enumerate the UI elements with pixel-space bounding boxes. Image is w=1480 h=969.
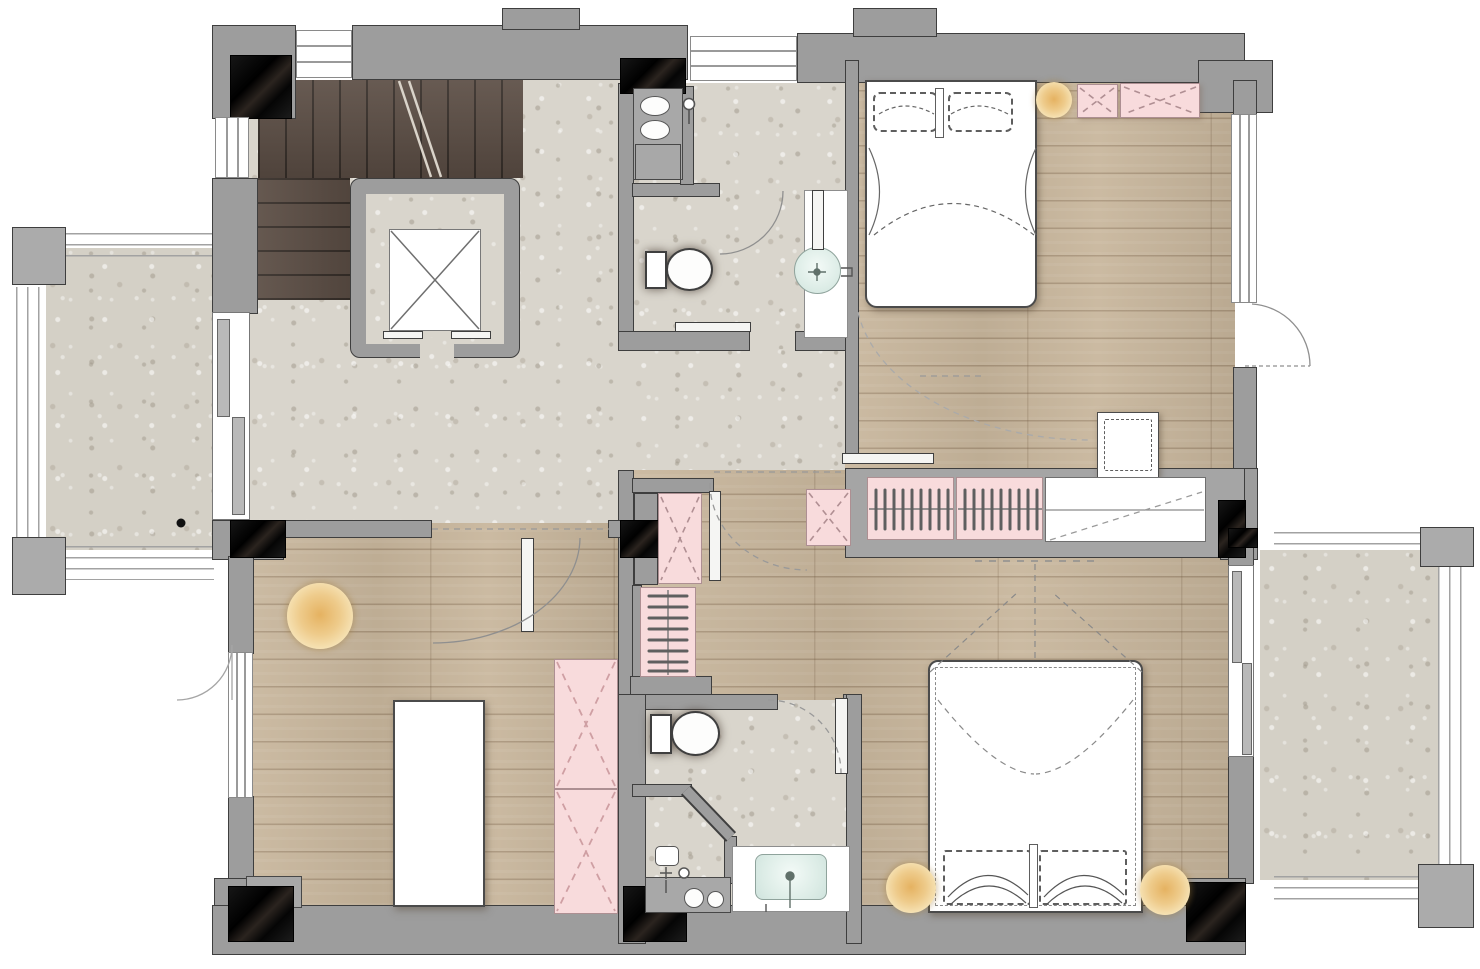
wall-bath-partition: [632, 183, 720, 197]
wall-bl-left-lower: [228, 796, 254, 888]
sliding-door-bath-top: [675, 322, 751, 332]
sliding-door-left-balcony: [212, 312, 250, 520]
wall-nook-top: [632, 478, 714, 493]
wall-right-below-door: [1233, 367, 1257, 472]
column-top-left: [230, 55, 292, 119]
bed-2-pillow-right: [1039, 850, 1127, 905]
railing-right-top: [1274, 532, 1420, 552]
wardrobeBL-upper: [554, 659, 618, 789]
pillar-balcony-left-bottom: [12, 537, 66, 595]
window-bedroomBL-left: [228, 652, 253, 798]
wall-top-notch-a: [502, 8, 580, 30]
pink-cabinet-small-top: [1077, 84, 1118, 118]
stairs-upper-flight: [258, 80, 523, 178]
window-top-left: [296, 30, 352, 78]
stairs-lower-flight: [258, 178, 350, 300]
wardrobe-hanging-a: [867, 477, 954, 540]
bed-1-pillow-left: [873, 92, 938, 132]
column-mid-left: [230, 520, 286, 558]
laundry-basin-2: [640, 120, 670, 140]
utility-ring-2: [707, 891, 724, 908]
railing-left-top: [64, 233, 214, 265]
toilet-bottom-tank: [650, 714, 672, 754]
wall-right-lower: [1228, 756, 1254, 884]
floor-lamp-bedroom2: [287, 583, 353, 649]
bedside-lamp-2-right: [1140, 865, 1190, 915]
dresser-inner: [1104, 419, 1152, 471]
door-leaf-bath-bottom: [835, 698, 848, 774]
sliding-door-right-balcony: [1228, 565, 1254, 757]
wall-top-b: [797, 33, 1245, 83]
laundry-cabinet: [635, 144, 681, 180]
laundry-basin-1: [640, 96, 670, 116]
bed-2-pillow-left: [943, 850, 1031, 905]
corridor-pink-cabinet: [658, 493, 702, 584]
wall-left-panel: [212, 178, 258, 314]
column-mid-center: [620, 520, 662, 558]
pink-storage-box: [806, 489, 851, 546]
railing-right-side: [1438, 565, 1466, 865]
pink-cabinet-wide-top: [1120, 83, 1200, 118]
floor-plan-canvas: [0, 0, 1480, 969]
bed-1-headboard-center: [935, 88, 944, 138]
wall-top-notch-b: [853, 8, 937, 37]
arc-bedroom1-exterior-door: [1252, 304, 1310, 366]
pillar-balcony-right-bottom: [1418, 864, 1474, 928]
toilet-bottom-bowl: [671, 711, 720, 756]
hall-floor-extension: [632, 347, 845, 470]
bedside-lamp-2-left: [886, 863, 936, 913]
toilet-top-bowl: [666, 248, 713, 291]
door-leaf-bath-partition: [812, 190, 824, 250]
elevator-cab: [389, 229, 481, 331]
bedside-lamp-1: [1036, 82, 1072, 118]
pillar-balcony-right-top: [1420, 527, 1474, 567]
wall-bath-top-left: [618, 83, 634, 349]
sliding-leaf-bedroom2: [521, 538, 534, 632]
wardrobe-hanging-b: [956, 477, 1043, 540]
long-table: [393, 700, 485, 907]
column-bottom-left: [228, 886, 294, 942]
utility-ring-1: [684, 888, 704, 908]
wall-closet-bottom: [630, 676, 712, 696]
bed-2-center-tab: [1029, 844, 1038, 908]
column-bottom-right: [1186, 882, 1246, 942]
balcony-left-floor: [46, 248, 212, 550]
window-left-upper: [215, 117, 249, 178]
pillar-balcony-left-top: [12, 227, 66, 285]
sliding-leaf-corridor: [709, 491, 721, 581]
washbasin-round: [794, 247, 841, 294]
basin-rect: [755, 854, 827, 900]
wall-right-upper-stub: [1233, 80, 1257, 116]
railing-left-side: [16, 287, 40, 537]
corridor-hanging-closet: [640, 587, 696, 677]
elevator-door-gap: [420, 338, 454, 360]
toilet-bottom: [645, 706, 727, 762]
toilet-top: [640, 244, 720, 296]
elevator-sill-right: [451, 331, 491, 339]
wall-bl-left-upper: [228, 556, 254, 654]
column-balcony-right-sliver: [1228, 528, 1258, 548]
window-top-middle: [690, 36, 797, 81]
wall-bath-top-bottom-a: [618, 331, 750, 351]
toilet-top-tank: [645, 251, 667, 289]
window-bedroomTR-right: [1231, 114, 1257, 303]
wall-shower-h: [632, 784, 692, 797]
railing-left-bottom: [64, 546, 214, 580]
bed-1-pillow-right: [948, 92, 1013, 132]
wardrobe-linen-cabinet: [1045, 477, 1206, 542]
sliding-door-bedroom1: [842, 453, 934, 464]
shower-mixer-plate: [655, 846, 679, 866]
wardrobeBL-lower: [554, 789, 618, 914]
balcony-right-floor: [1260, 550, 1438, 880]
railing-right-bottom: [1274, 876, 1418, 904]
arc-exterior-left-door: [177, 645, 232, 700]
elevator-sill-left: [383, 331, 423, 339]
